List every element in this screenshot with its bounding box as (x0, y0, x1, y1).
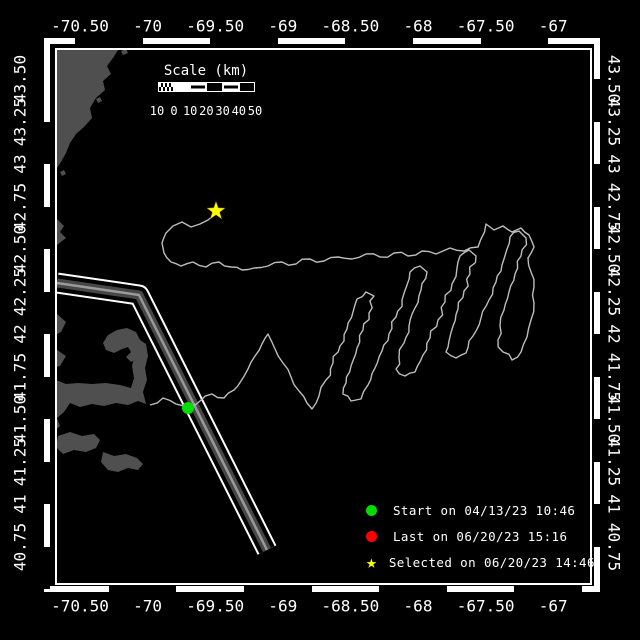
lat-label-left: 42 (11, 324, 30, 343)
lat-label-left: 41.50 (11, 395, 30, 443)
map-border-right (594, 38, 600, 592)
border-black-segment (44, 122, 50, 165)
lat-label-left: 43 (11, 154, 30, 173)
border-black-segment (210, 38, 278, 44)
lat-label-left: 42.75 (11, 182, 30, 230)
border-black-segment (594, 249, 600, 292)
border-black-segment (44, 462, 50, 505)
scale-bar-segment-striped (223, 82, 239, 92)
legend-star-icon: ★ (366, 557, 377, 568)
scale-bar-tick-label: 20 (199, 104, 213, 118)
border-black-segment (345, 38, 413, 44)
lon-label-bottom: -68.50 (321, 597, 379, 616)
border-black-segment (44, 377, 50, 420)
legend-label: Start on 04/13/23 10:46 (393, 503, 575, 518)
lon-label-bottom: -67 (539, 597, 568, 616)
lon-label-bottom: -67.50 (457, 597, 515, 616)
lon-label-bottom: -69 (268, 597, 297, 616)
lon-label-bottom: -68 (404, 597, 433, 616)
border-black-segment (594, 79, 600, 122)
scale-bar-segment-solid (174, 82, 190, 92)
legend-dot-icon (366, 505, 377, 516)
map-border-left (44, 38, 50, 592)
scale-bar-segment-outline (239, 82, 255, 92)
border-black-segment (44, 292, 50, 335)
lon-label-top: -68.50 (321, 17, 379, 36)
lat-label-right: 41 (605, 494, 624, 513)
lon-label-top: -67 (539, 17, 568, 36)
lat-label-left: 42.50 (11, 225, 30, 273)
legend-dot-icon (366, 531, 377, 542)
lat-label-left: 41.25 (11, 437, 30, 485)
map-border-bottom (44, 586, 598, 592)
lat-label-left: 41.75 (11, 352, 30, 400)
lat-label-right: 40.75 (605, 522, 624, 570)
legend-item: Last on 06/20/23 15:16 (366, 527, 567, 545)
lon-label-top: -69.50 (186, 17, 244, 36)
map-viewer-window: -70.50-70.50-70-70-69.50-69.50-69-69-68.… (0, 0, 640, 640)
scale-bar-segment-outline (206, 82, 222, 92)
lon-label-top: -69 (268, 17, 297, 36)
lat-label-right: 41.75 (605, 352, 624, 400)
border-black-segment (514, 586, 582, 592)
border-black-segment (594, 334, 600, 377)
lat-label-right: 43.25 (605, 97, 624, 145)
lat-label-right: 43.50 (605, 55, 624, 103)
border-black-segment (75, 38, 143, 44)
lon-label-bottom: -70 (133, 597, 162, 616)
legend-label: Last on 06/20/23 15:16 (393, 529, 567, 544)
border-black-segment (109, 586, 177, 592)
lat-label-right: 42 (605, 324, 624, 343)
lon-label-bottom: -69.50 (186, 597, 244, 616)
lat-label-left: 42.25 (11, 267, 30, 315)
lon-label-bottom: -70.50 (51, 597, 109, 616)
border-black-segment (244, 586, 312, 592)
lon-label-top: -67.50 (457, 17, 515, 36)
border-black-segment (594, 419, 600, 462)
legend-item: Start on 04/13/23 10:46 (366, 501, 575, 519)
lat-label-right: 42.50 (605, 225, 624, 273)
lon-label-top: -70 (133, 17, 162, 36)
lon-label-top: -70.50 (51, 17, 109, 36)
border-black-segment (481, 38, 549, 44)
scale-bar-tick-label: 0 (170, 104, 177, 118)
map-border-top (44, 38, 598, 44)
scale-bar-title: Scale (km) (164, 63, 248, 79)
lat-label-right: 43 (605, 154, 624, 173)
scale-bar-tick-label: 40 (232, 104, 246, 118)
border-black-segment (379, 586, 447, 592)
scale-bar-tick-label: 50 (248, 104, 262, 118)
lat-label-left: 40.75 (11, 522, 30, 570)
border-black-segment (44, 547, 50, 590)
lat-label-right: 42.75 (605, 182, 624, 230)
lat-label-left: 43.25 (11, 97, 30, 145)
border-black-segment (594, 164, 600, 207)
scale-bar-tick-label: 10 (183, 104, 197, 118)
border-black-segment (44, 207, 50, 250)
scale-bar-tick-label: 10 (150, 104, 164, 118)
scale-bar-segment-striped (190, 82, 206, 92)
legend-item: ★Selected on 06/20/23 14:46 (366, 553, 595, 571)
lat-label-left: 41 (11, 494, 30, 513)
lon-label-top: -68 (404, 17, 433, 36)
lat-label-right: 41.50 (605, 395, 624, 443)
scale-bar-tick-label: 30 (215, 104, 229, 118)
scale-bar-segment-checker (158, 82, 174, 92)
legend-label: Selected on 06/20/23 14:46 (389, 555, 595, 570)
lat-label-left: 43.50 (11, 55, 30, 103)
border-black-segment (594, 504, 600, 547)
lat-label-right: 42.25 (605, 267, 624, 315)
lat-label-right: 41.25 (605, 437, 624, 485)
